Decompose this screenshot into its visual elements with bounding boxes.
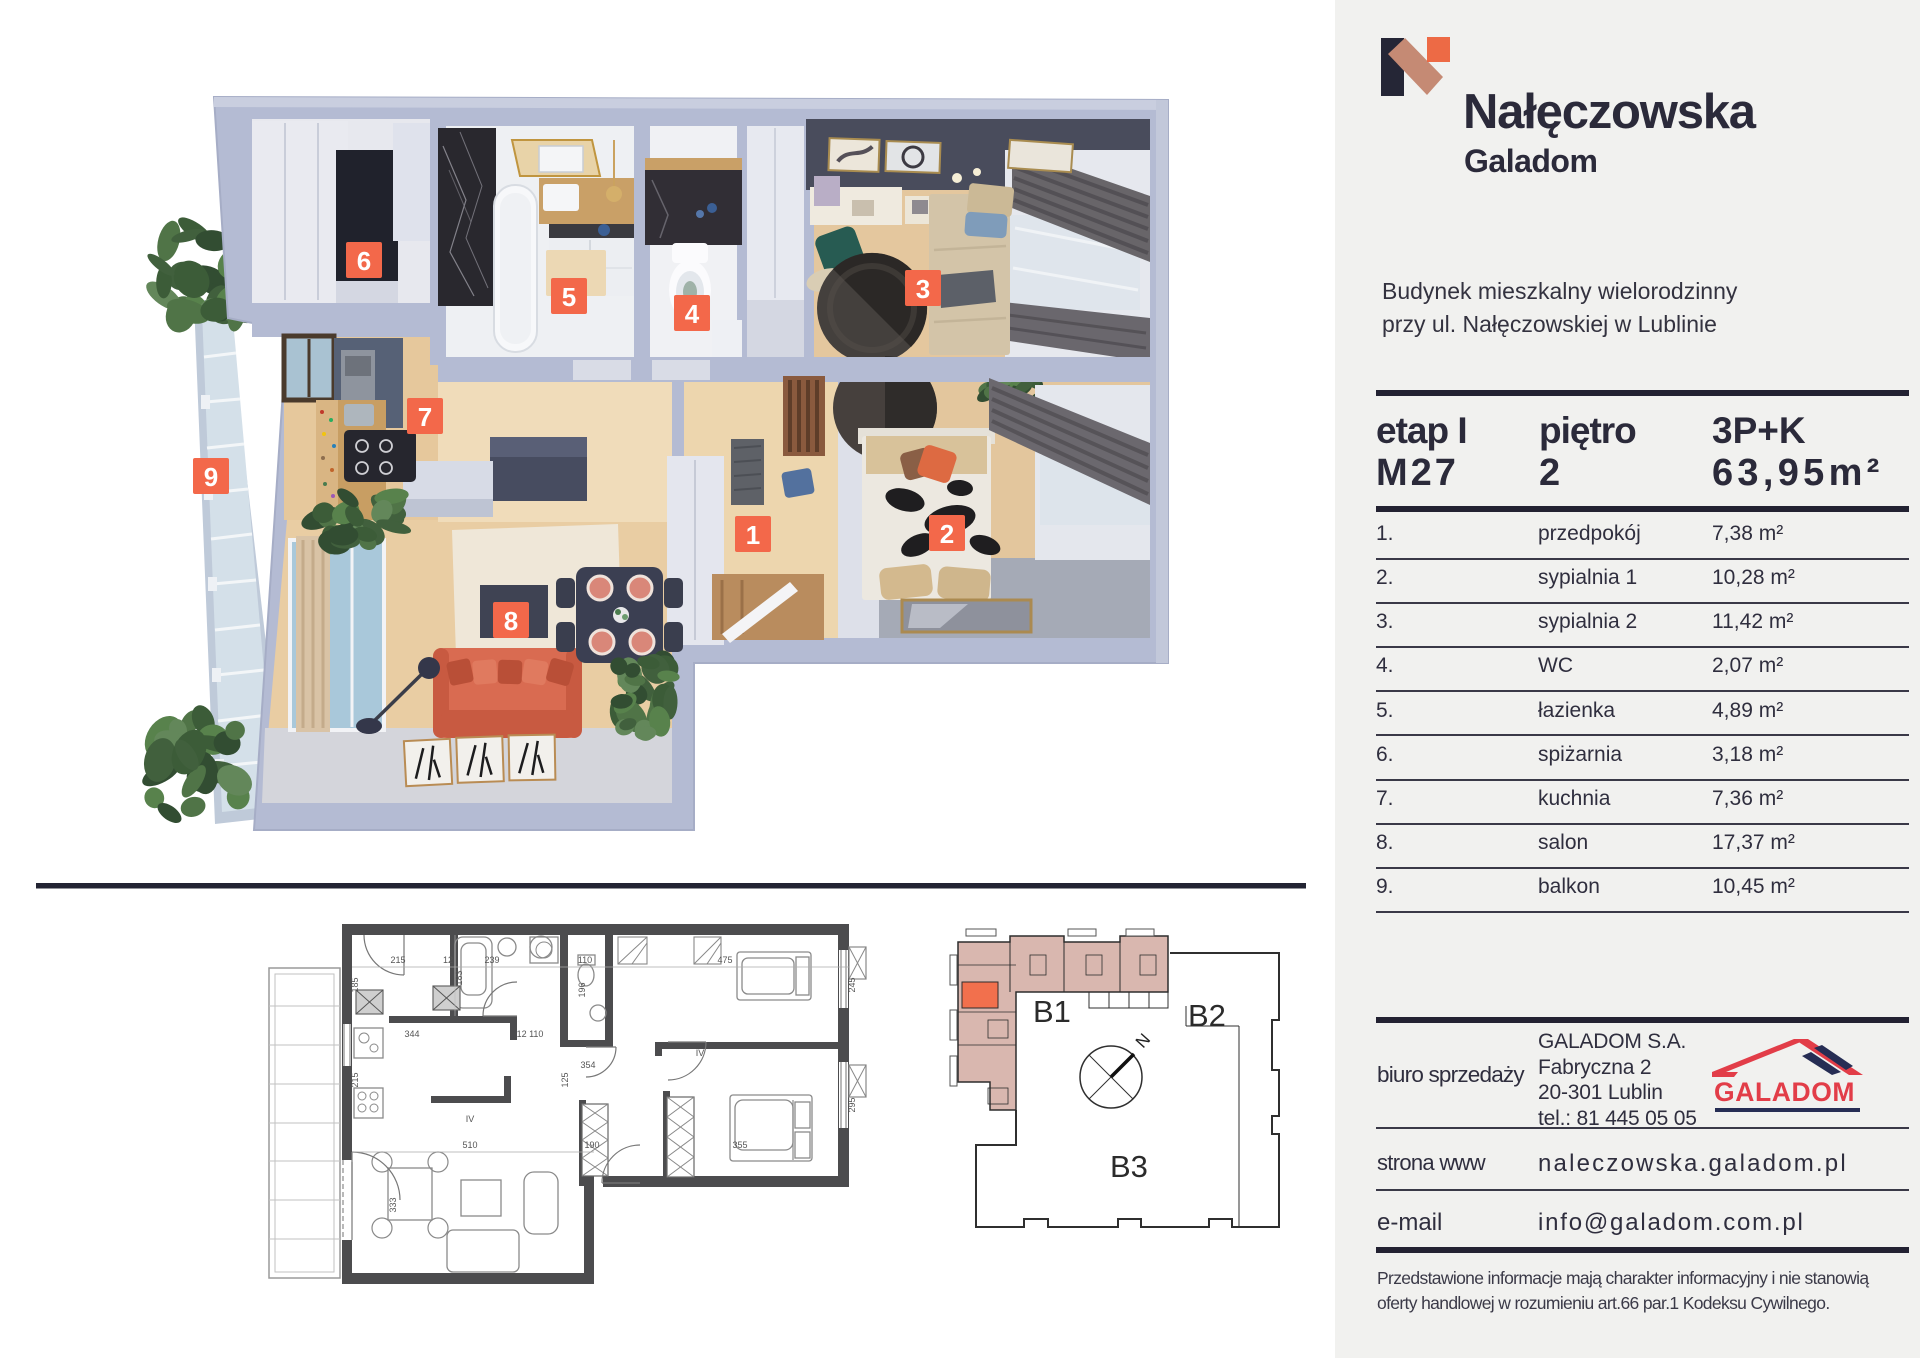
svg-text:9: 9	[204, 462, 218, 492]
svg-text:3: 3	[916, 274, 930, 304]
svg-text:IV: IV	[466, 1114, 475, 1124]
svg-text:1: 1	[746, 520, 760, 550]
svg-text:N: N	[1132, 1030, 1154, 1052]
svg-text:12: 12	[443, 955, 453, 965]
svg-text:GALADOM: GALADOM	[1714, 1077, 1855, 1107]
svg-text:215: 215	[350, 1072, 360, 1087]
svg-text:2: 2	[940, 519, 954, 549]
svg-text:125: 125	[560, 1072, 570, 1087]
svg-text:IV: IV	[696, 1048, 705, 1058]
svg-text:510: 510	[462, 1140, 477, 1150]
svg-text:185: 185	[350, 977, 360, 992]
svg-text:B3: B3	[1110, 1149, 1148, 1184]
svg-text:190: 190	[584, 1140, 599, 1150]
svg-text:215: 215	[390, 955, 405, 965]
svg-text:355: 355	[732, 1140, 747, 1150]
svg-text:333: 333	[388, 1197, 398, 1212]
svg-text:183: 183	[454, 970, 464, 985]
svg-text:7: 7	[418, 402, 432, 432]
svg-text:B2: B2	[1188, 998, 1226, 1033]
svg-text:344: 344	[404, 1029, 419, 1039]
svg-text:196: 196	[577, 982, 587, 997]
svg-text:12 110: 12 110	[517, 1029, 544, 1039]
svg-text:239: 239	[484, 955, 499, 965]
svg-text:245: 245	[847, 977, 857, 992]
svg-text:4: 4	[685, 299, 700, 329]
svg-text:475: 475	[717, 955, 732, 965]
svg-text:5: 5	[562, 282, 576, 312]
svg-text:295: 295	[847, 1097, 857, 1112]
svg-text:8: 8	[504, 606, 518, 636]
svg-text:354: 354	[580, 1060, 595, 1070]
svg-text:B1: B1	[1033, 994, 1071, 1029]
svg-text:110: 110	[578, 955, 592, 965]
svg-text:6: 6	[357, 246, 371, 276]
